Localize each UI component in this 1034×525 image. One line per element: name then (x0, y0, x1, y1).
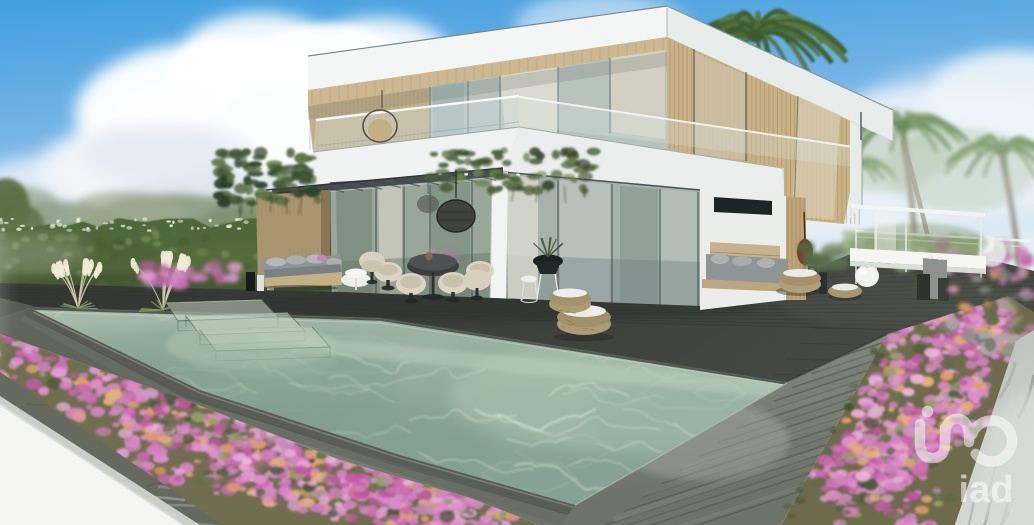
svg-text:iad: iad (959, 469, 1014, 511)
